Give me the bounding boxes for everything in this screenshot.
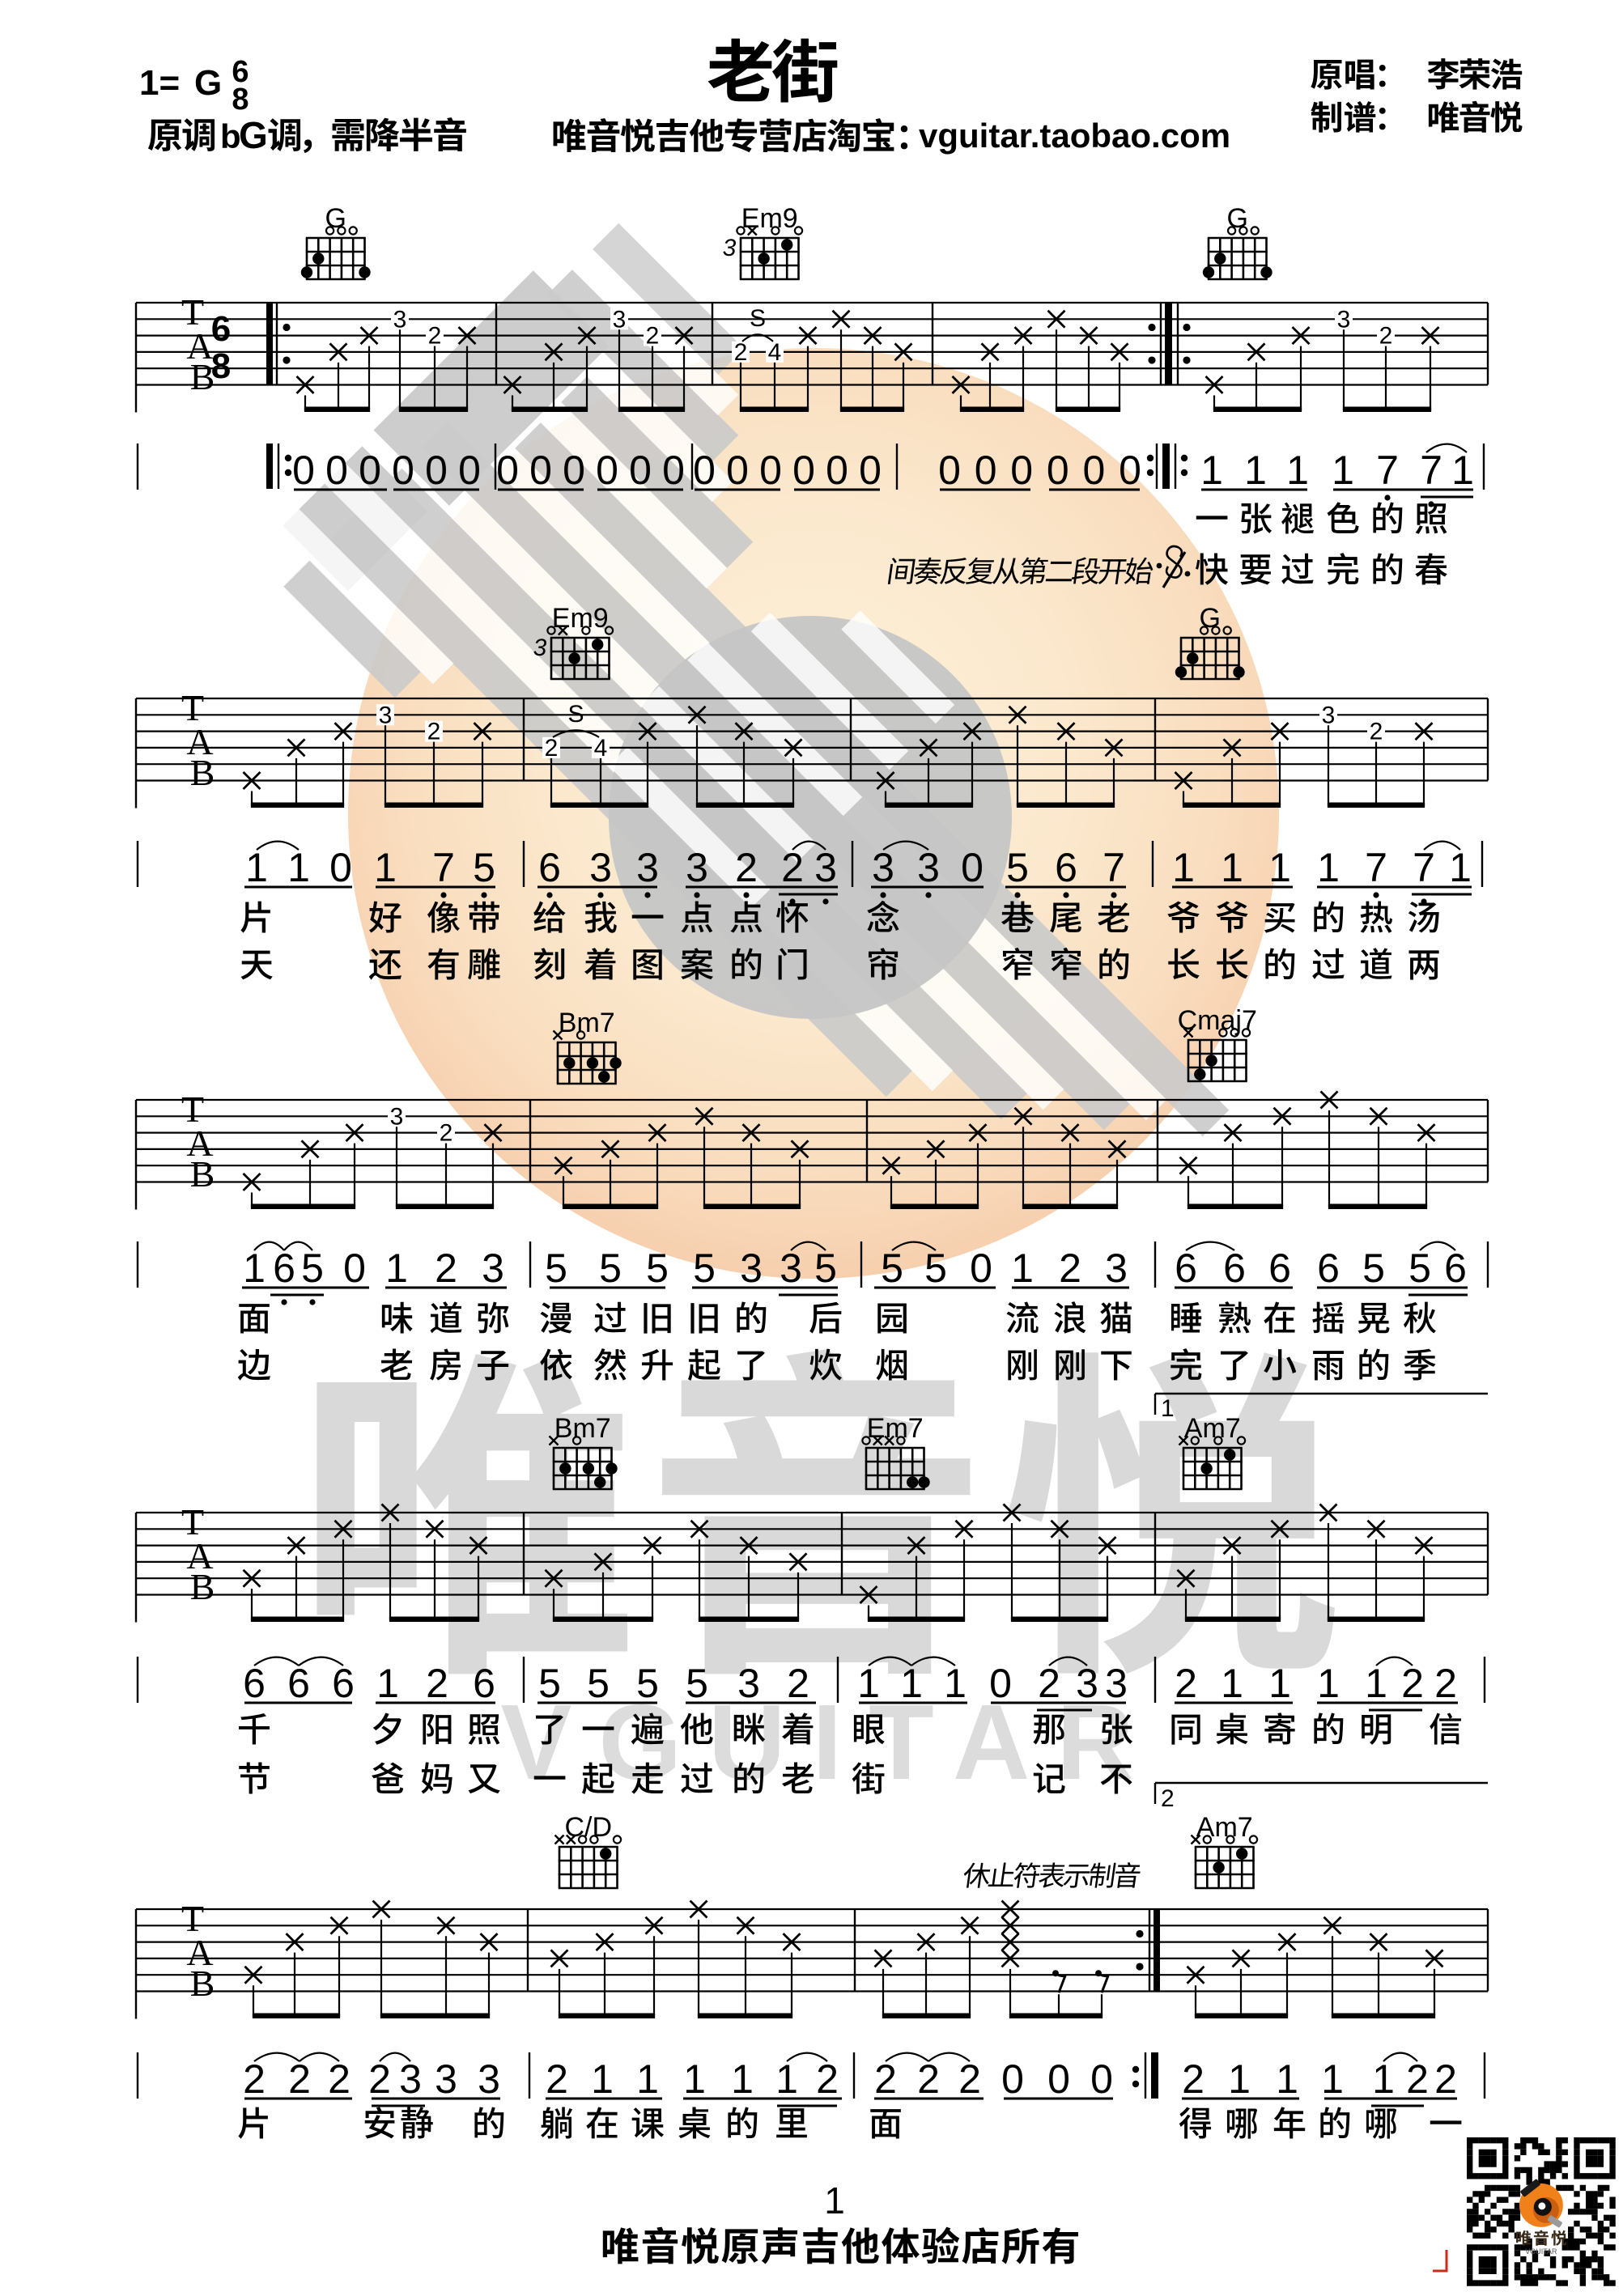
svg-text:5: 5 (1362, 1246, 1385, 1291)
svg-text:6: 6 (1444, 1246, 1467, 1291)
svg-text:3: 3 (636, 845, 659, 890)
svg-text:5: 5 (473, 845, 495, 890)
svg-text:Am7: Am7 (1196, 1812, 1253, 1843)
svg-text:2: 2 (1401, 1661, 1424, 1706)
svg-text:b: b (220, 117, 241, 155)
svg-text:B: B (190, 1566, 215, 1607)
svg-text:0: 0 (563, 448, 585, 493)
svg-text:0: 0 (343, 1246, 366, 1291)
svg-text:3: 3 (740, 1246, 763, 1291)
svg-text:6: 6 (1175, 1246, 1197, 1291)
svg-text:6: 6 (473, 1661, 495, 1706)
svg-text:1: 1 (243, 1246, 266, 1291)
svg-text:6: 6 (273, 1246, 295, 1291)
svg-text:Am7: Am7 (1184, 1413, 1241, 1444)
svg-text:5: 5 (636, 1661, 659, 1706)
svg-text:3: 3 (399, 2056, 422, 2102)
svg-text:5: 5 (1006, 845, 1029, 890)
svg-text:5: 5 (301, 1246, 324, 1291)
svg-text:5: 5 (686, 1661, 708, 1706)
svg-text:1: 1 (1365, 1661, 1387, 1706)
svg-text:0: 0 (325, 448, 348, 493)
svg-text:7: 7 (1365, 845, 1387, 890)
svg-text:5: 5 (814, 1246, 837, 1291)
svg-text:Bm7: Bm7 (554, 1413, 611, 1444)
svg-text:1: 1 (374, 845, 397, 890)
svg-text:3: 3 (1105, 1246, 1128, 1291)
svg-text:5: 5 (1408, 1246, 1431, 1291)
svg-text:0: 0 (1010, 448, 1033, 493)
svg-text:1: 1 (245, 845, 268, 890)
svg-text:3: 3 (589, 845, 612, 890)
svg-text:G: G (239, 114, 268, 156)
svg-text:8: 8 (232, 83, 249, 117)
svg-text:3: 3 (723, 235, 737, 261)
svg-text:G: G (1227, 203, 1248, 234)
svg-text:6: 6 (1268, 1246, 1291, 1291)
svg-text:3: 3 (872, 845, 894, 890)
svg-text:1: 1 (900, 1661, 923, 1706)
svg-text:1: 1 (376, 1661, 399, 1706)
svg-text:0: 0 (859, 448, 882, 493)
svg-text:2: 2 (288, 2056, 311, 2102)
svg-text:3: 3 (1105, 1661, 1128, 1706)
svg-text:1: 1 (857, 1661, 880, 1706)
svg-text:6: 6 (287, 1661, 310, 1706)
svg-text:VGUITAR: VGUITAR (1525, 2247, 1557, 2256)
svg-text:G: G (194, 63, 222, 103)
svg-text:0: 0 (1090, 2056, 1113, 2102)
svg-text:2: 2 (874, 2056, 897, 2102)
svg-text:2: 2 (435, 1246, 457, 1291)
svg-text:2: 2 (787, 1661, 809, 1706)
svg-text:0: 0 (629, 448, 652, 493)
svg-text:vguitar.taobao.com: vguitar.taobao.com (919, 117, 1230, 155)
svg-text:4: 4 (594, 735, 608, 762)
svg-text:1: 1 (775, 2056, 798, 2102)
svg-text:2: 2 (1406, 2056, 1429, 2102)
svg-text:7: 7 (1103, 845, 1125, 890)
svg-text:1: 1 (1372, 2056, 1395, 2102)
svg-text:1: 1 (1268, 1661, 1291, 1706)
svg-text:1=: 1= (139, 63, 180, 103)
svg-text:5: 5 (924, 1246, 947, 1291)
svg-text:2: 2 (1379, 323, 1393, 350)
svg-text:3: 3 (390, 1103, 404, 1130)
svg-text:3: 3 (435, 2056, 457, 2102)
svg-text:3: 3 (393, 306, 407, 333)
svg-text:0: 0 (392, 448, 414, 493)
svg-text:1: 1 (1451, 448, 1474, 493)
svg-text:1: 1 (1286, 448, 1309, 493)
svg-text:2: 2 (328, 2056, 351, 2102)
svg-text:2: 2 (1434, 1661, 1457, 1706)
svg-text:0: 0 (792, 448, 815, 493)
svg-text:2: 2 (440, 1120, 453, 1147)
svg-text:2: 2 (428, 323, 442, 350)
svg-text:1: 1 (1172, 845, 1195, 890)
svg-text:3: 3 (533, 634, 547, 661)
svg-text:2: 2 (368, 2056, 391, 2102)
svg-text:2: 2 (646, 323, 660, 350)
svg-text:2: 2 (816, 2056, 839, 2102)
svg-text:2: 2 (1182, 2056, 1205, 2102)
svg-text:1: 1 (636, 2056, 659, 2102)
svg-text:1: 1 (1161, 1395, 1175, 1422)
svg-text:0: 0 (1119, 448, 1141, 493)
svg-text:0: 0 (596, 448, 618, 493)
svg-text:2: 2 (917, 2056, 940, 2102)
svg-text:1: 1 (1317, 845, 1340, 890)
svg-text:0: 0 (1082, 448, 1105, 493)
svg-text:3: 3 (482, 1246, 504, 1291)
svg-text:Bm7: Bm7 (559, 1008, 615, 1038)
svg-text:2: 2 (735, 845, 758, 890)
svg-text:1: 1 (824, 2179, 845, 2222)
svg-text:2: 2 (243, 2056, 266, 2102)
svg-text:7: 7 (1420, 448, 1442, 493)
svg-text:5: 5 (693, 1246, 716, 1291)
svg-text:0: 0 (826, 448, 848, 493)
svg-text:1: 1 (944, 1661, 967, 1706)
svg-text:0: 0 (938, 448, 961, 493)
svg-text:5: 5 (646, 1246, 669, 1291)
svg-text:3: 3 (1322, 702, 1336, 728)
svg-text:0: 0 (359, 448, 381, 493)
svg-text:2: 2 (426, 1661, 448, 1706)
svg-text:G: G (325, 203, 346, 234)
svg-text:0: 0 (329, 845, 352, 890)
svg-text:0: 0 (292, 448, 315, 493)
svg-text:3: 3 (379, 702, 393, 728)
svg-text:8: 8 (211, 346, 231, 386)
svg-text:1: 1 (1244, 448, 1267, 493)
svg-text:3: 3 (1076, 1661, 1098, 1706)
svg-text:3: 3 (1337, 306, 1351, 333)
svg-text:4: 4 (768, 339, 782, 366)
svg-text:2: 2 (958, 2056, 981, 2102)
svg-text:B: B (190, 1963, 215, 2004)
svg-text:0: 0 (975, 448, 997, 493)
svg-text:6: 6 (1317, 1246, 1340, 1291)
svg-text:3: 3 (478, 2056, 500, 2102)
svg-text:1: 1 (1221, 845, 1243, 890)
svg-text:1: 1 (1317, 1661, 1340, 1706)
svg-text:2: 2 (1370, 719, 1383, 745)
svg-text:7: 7 (432, 845, 455, 890)
svg-text:1: 1 (1449, 845, 1472, 890)
svg-text:0: 0 (1001, 2056, 1024, 2102)
svg-text:0: 0 (726, 448, 749, 493)
svg-text:S: S (567, 701, 584, 728)
svg-text:S: S (750, 305, 766, 332)
svg-text:0: 0 (1047, 2056, 1070, 2102)
svg-text:0: 0 (961, 845, 984, 890)
svg-text:5: 5 (545, 1246, 567, 1291)
svg-text:0: 0 (458, 448, 481, 493)
svg-text:0: 0 (529, 448, 552, 493)
svg-text:5: 5 (587, 1661, 610, 1706)
svg-text:6: 6 (211, 309, 231, 349)
svg-text:0: 0 (759, 448, 782, 493)
svg-text:1: 1 (1200, 448, 1223, 493)
svg-text:0: 0 (989, 1661, 1012, 1706)
svg-text:0: 0 (1047, 448, 1069, 493)
svg-text:7: 7 (1376, 448, 1399, 493)
svg-text:1: 1 (1268, 845, 1291, 890)
svg-text:3: 3 (780, 1246, 802, 1291)
svg-text:2: 2 (1059, 1246, 1081, 1291)
svg-text:G: G (1200, 603, 1221, 634)
svg-text:1: 1 (1276, 2056, 1298, 2102)
svg-text:B: B (190, 752, 215, 793)
svg-text:1: 1 (591, 2056, 614, 2102)
svg-text:6: 6 (1223, 1246, 1246, 1291)
svg-text:2: 2 (427, 719, 441, 745)
svg-text:1: 1 (287, 845, 310, 890)
svg-text:2: 2 (1161, 1785, 1175, 1812)
svg-text:2: 2 (734, 339, 748, 366)
svg-text:1: 1 (1321, 2056, 1344, 2102)
svg-text:6: 6 (243, 1661, 266, 1706)
svg-text:3: 3 (686, 845, 708, 890)
svg-text:1: 1 (683, 2056, 706, 2102)
svg-text:1: 1 (1332, 448, 1354, 493)
svg-text:1: 1 (1011, 1246, 1034, 1291)
svg-text:5: 5 (599, 1246, 622, 1291)
svg-text:2: 2 (1434, 2056, 1457, 2102)
svg-text:1: 1 (731, 2056, 754, 2102)
svg-text:6: 6 (332, 1661, 355, 1706)
svg-text:6: 6 (538, 845, 561, 890)
svg-text:3: 3 (814, 845, 837, 890)
svg-text:0: 0 (693, 448, 716, 493)
svg-text:3: 3 (917, 845, 940, 890)
svg-text:1: 1 (385, 1246, 408, 1291)
svg-text:5: 5 (881, 1246, 903, 1291)
svg-text:0: 0 (496, 448, 519, 493)
svg-text:6: 6 (1055, 845, 1077, 890)
svg-text:7: 7 (1413, 845, 1435, 890)
svg-text:3: 3 (613, 306, 627, 333)
svg-text:2: 2 (781, 845, 804, 890)
svg-text:0: 0 (662, 448, 685, 493)
svg-text:1: 1 (1228, 2056, 1251, 2102)
svg-text:2: 2 (545, 735, 559, 762)
svg-text:2: 2 (546, 2056, 568, 2102)
svg-text:2: 2 (1175, 1661, 1197, 1706)
svg-text:0: 0 (425, 448, 448, 493)
svg-text:B: B (190, 1153, 215, 1195)
svg-text:1: 1 (1221, 1661, 1243, 1706)
svg-text:3: 3 (737, 1661, 760, 1706)
svg-text:2: 2 (1038, 1661, 1060, 1706)
svg-text:5: 5 (538, 1661, 561, 1706)
svg-text:0: 0 (970, 1246, 992, 1291)
